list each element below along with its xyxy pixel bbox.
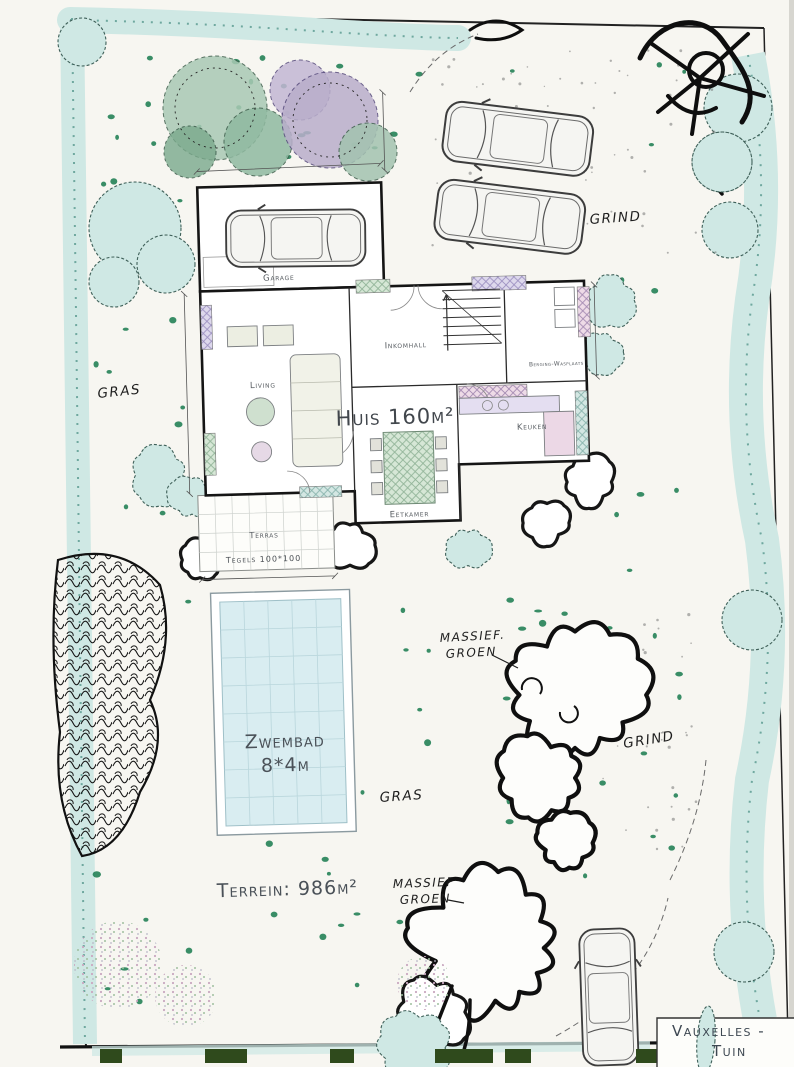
terras-label: Terras	[248, 530, 278, 541]
massief-groen-top-2: GROEN	[445, 644, 497, 661]
garden-plan-drawing: Terras Tegels 100*100 Garage	[0, 0, 794, 1067]
terras: Terras Tegels 100*100	[198, 492, 335, 572]
inkomhall-label: Inkomhall	[385, 340, 427, 351]
gras-label-center: GRAS	[379, 787, 424, 806]
grind-label-right: GRIND	[622, 728, 676, 752]
house: Living Inkomhall Berging-Wasplaats Keuke…	[200, 274, 596, 528]
hedge-shrub	[58, 18, 106, 66]
living-label: Living	[250, 380, 276, 391]
left-bush	[53, 554, 166, 856]
pool: Zwembad 8*4m	[211, 589, 357, 835]
huis-label: Huis 160m²	[335, 403, 454, 430]
garage-label: Garage	[263, 273, 295, 284]
massief-groen-bottom-1: MASSIEF	[393, 875, 455, 891]
terrein-label: Terrein: 986m²	[216, 876, 359, 902]
zwembad-label-2: 8*4m	[261, 754, 311, 777]
garage: Garage	[197, 182, 384, 291]
massief-groen-bottom-2: GROEN	[400, 891, 452, 907]
car-top-1	[440, 94, 596, 183]
car-top-2	[432, 172, 588, 261]
car-garage	[226, 204, 366, 273]
title-line-2: Tuin	[711, 1042, 747, 1060]
car-bottom	[573, 928, 644, 1066]
title-line-1: Vauxelles -	[672, 1022, 765, 1040]
gras-label-left: GRAS	[97, 382, 142, 402]
eetkamer-label: Eetkamer	[390, 509, 430, 520]
massief-groen-top-1: MASSIEF.	[439, 628, 505, 645]
keuken-label: Keuken	[517, 422, 547, 433]
garden-plan-page: Terras Tegels 100*100 Garage	[0, 0, 794, 1067]
stipple-trees	[74, 921, 451, 1027]
zwembad-label-1: Zwembad	[244, 729, 325, 753]
plant-dots	[93, 55, 687, 1004]
grind-label-top: GRIND	[589, 208, 642, 228]
